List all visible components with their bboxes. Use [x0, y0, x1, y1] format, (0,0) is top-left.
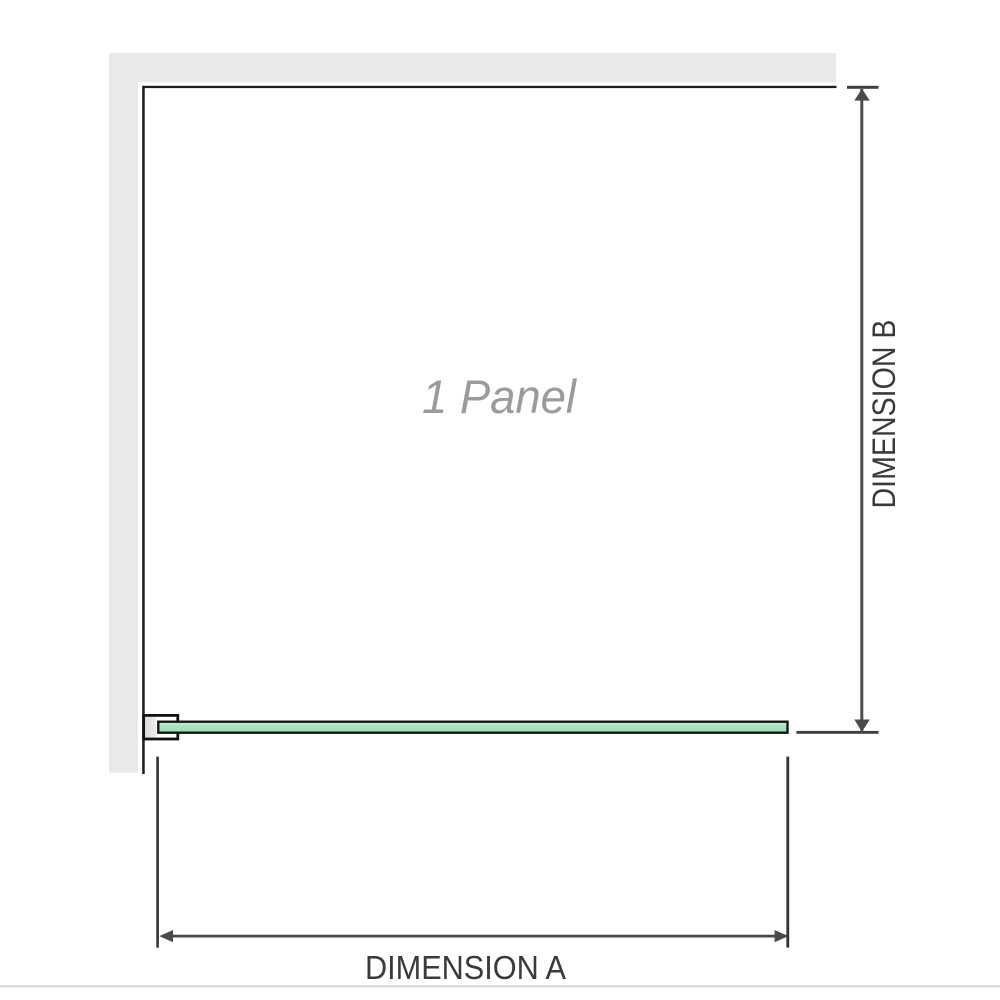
svg-text:1 Panel: 1 Panel: [422, 370, 578, 423]
svg-text:DIMENSION B: DIMENSION B: [866, 320, 902, 509]
svg-text:DIMENSION A: DIMENSION A: [365, 950, 567, 987]
